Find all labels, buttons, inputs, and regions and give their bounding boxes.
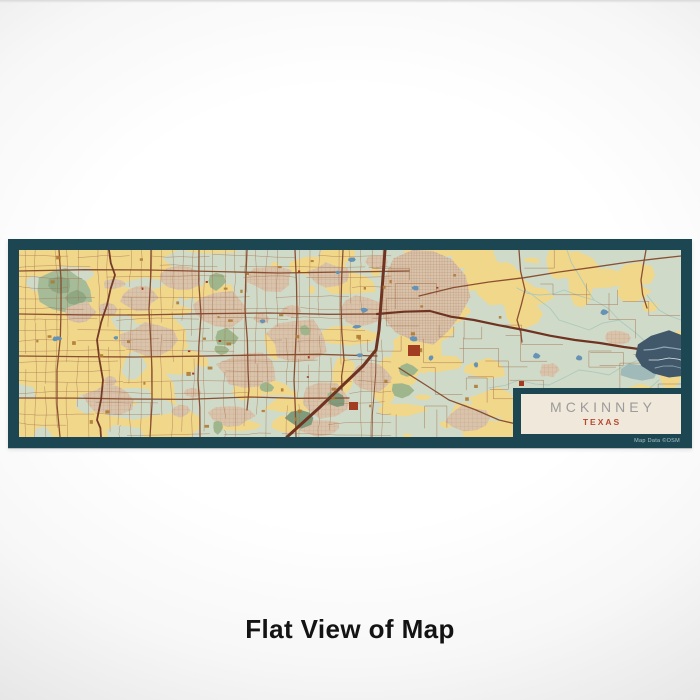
map-subtitle: TEXAS <box>583 417 621 428</box>
map-label-card: MCKINNEY TEXAS <box>521 394 681 434</box>
backdrop: MCKINNEY TEXAS Map Data ©OSM Flat View o… <box>0 0 700 700</box>
map-title: MCKINNEY <box>550 400 656 415</box>
map-attribution: Map Data ©OSM <box>634 438 680 445</box>
map-print[interactable]: MCKINNEY TEXAS Map Data ©OSM <box>8 239 692 448</box>
view-caption: Flat View of Map <box>0 614 700 645</box>
